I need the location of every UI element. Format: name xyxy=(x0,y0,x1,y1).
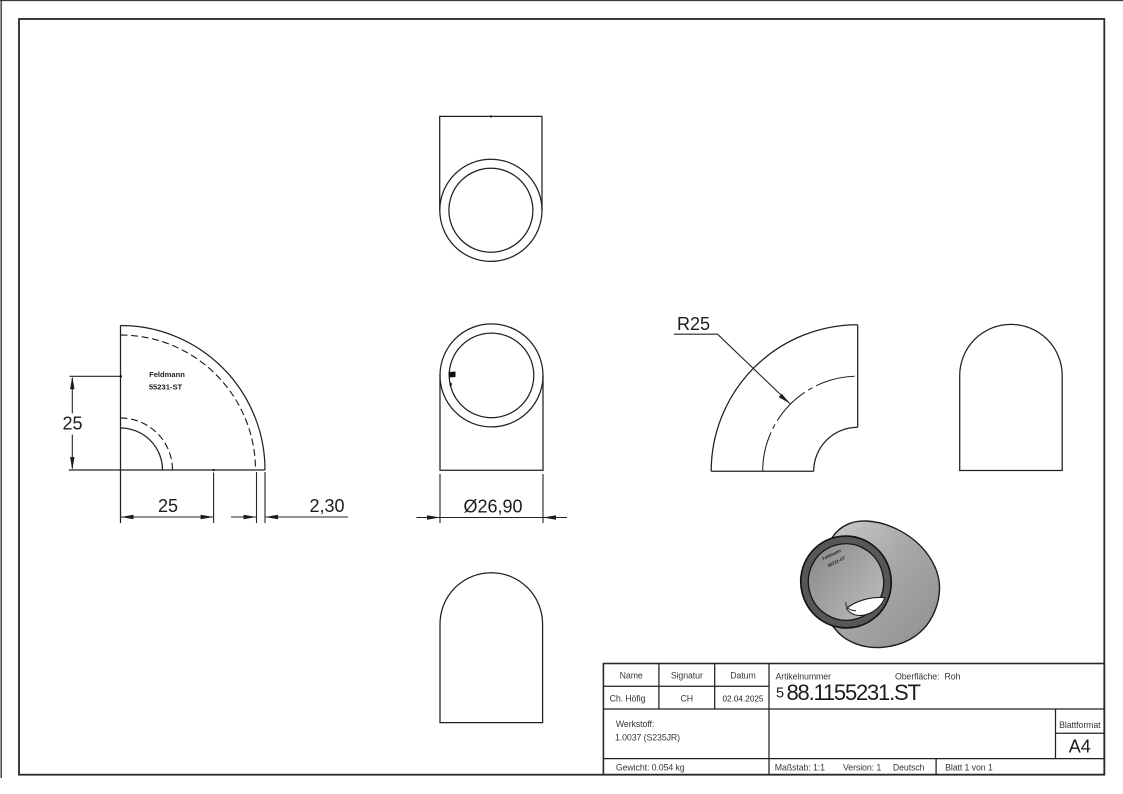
svg-text:CH: CH xyxy=(681,694,694,704)
svg-text:R25: R25 xyxy=(677,314,710,334)
svg-text:25: 25 xyxy=(62,414,82,434)
svg-text:5: 5 xyxy=(776,686,784,702)
svg-text:Version: 1: Version: 1 xyxy=(843,763,881,773)
svg-text:1.0037 (S235JR): 1.0037 (S235JR) xyxy=(615,733,680,743)
svg-text:Gewicht: 0.054 kg: Gewicht: 0.054 kg xyxy=(616,763,685,773)
svg-text:Ch. Höfig: Ch. Höfig xyxy=(610,694,646,704)
svg-text:Datum: Datum xyxy=(730,671,755,681)
svg-text:Deutsch: Deutsch xyxy=(893,763,925,773)
svg-text:2,30: 2,30 xyxy=(309,496,344,516)
svg-text:Roh: Roh xyxy=(945,672,961,682)
svg-text:A4: A4 xyxy=(1069,737,1091,757)
svg-text:Name: Name xyxy=(620,671,643,681)
svg-text:Signatur: Signatur xyxy=(671,671,703,681)
svg-text:Maßstab: 1:1: Maßstab: 1:1 xyxy=(775,763,825,773)
svg-text:88.1155231.ST: 88.1155231.ST xyxy=(787,680,921,705)
svg-text:02.04.2025: 02.04.2025 xyxy=(723,695,764,704)
svg-text:Blattformat: Blattformat xyxy=(1059,720,1101,730)
svg-text:55231-ST: 55231-ST xyxy=(149,382,183,391)
svg-text:Ø26,90: Ø26,90 xyxy=(463,497,522,517)
svg-text:25: 25 xyxy=(158,496,178,516)
svg-text:Feldmann: Feldmann xyxy=(149,370,185,379)
svg-text:Blatt 1 von 1: Blatt 1 von 1 xyxy=(945,763,993,773)
svg-text:Werkstoff:: Werkstoff: xyxy=(616,719,654,729)
